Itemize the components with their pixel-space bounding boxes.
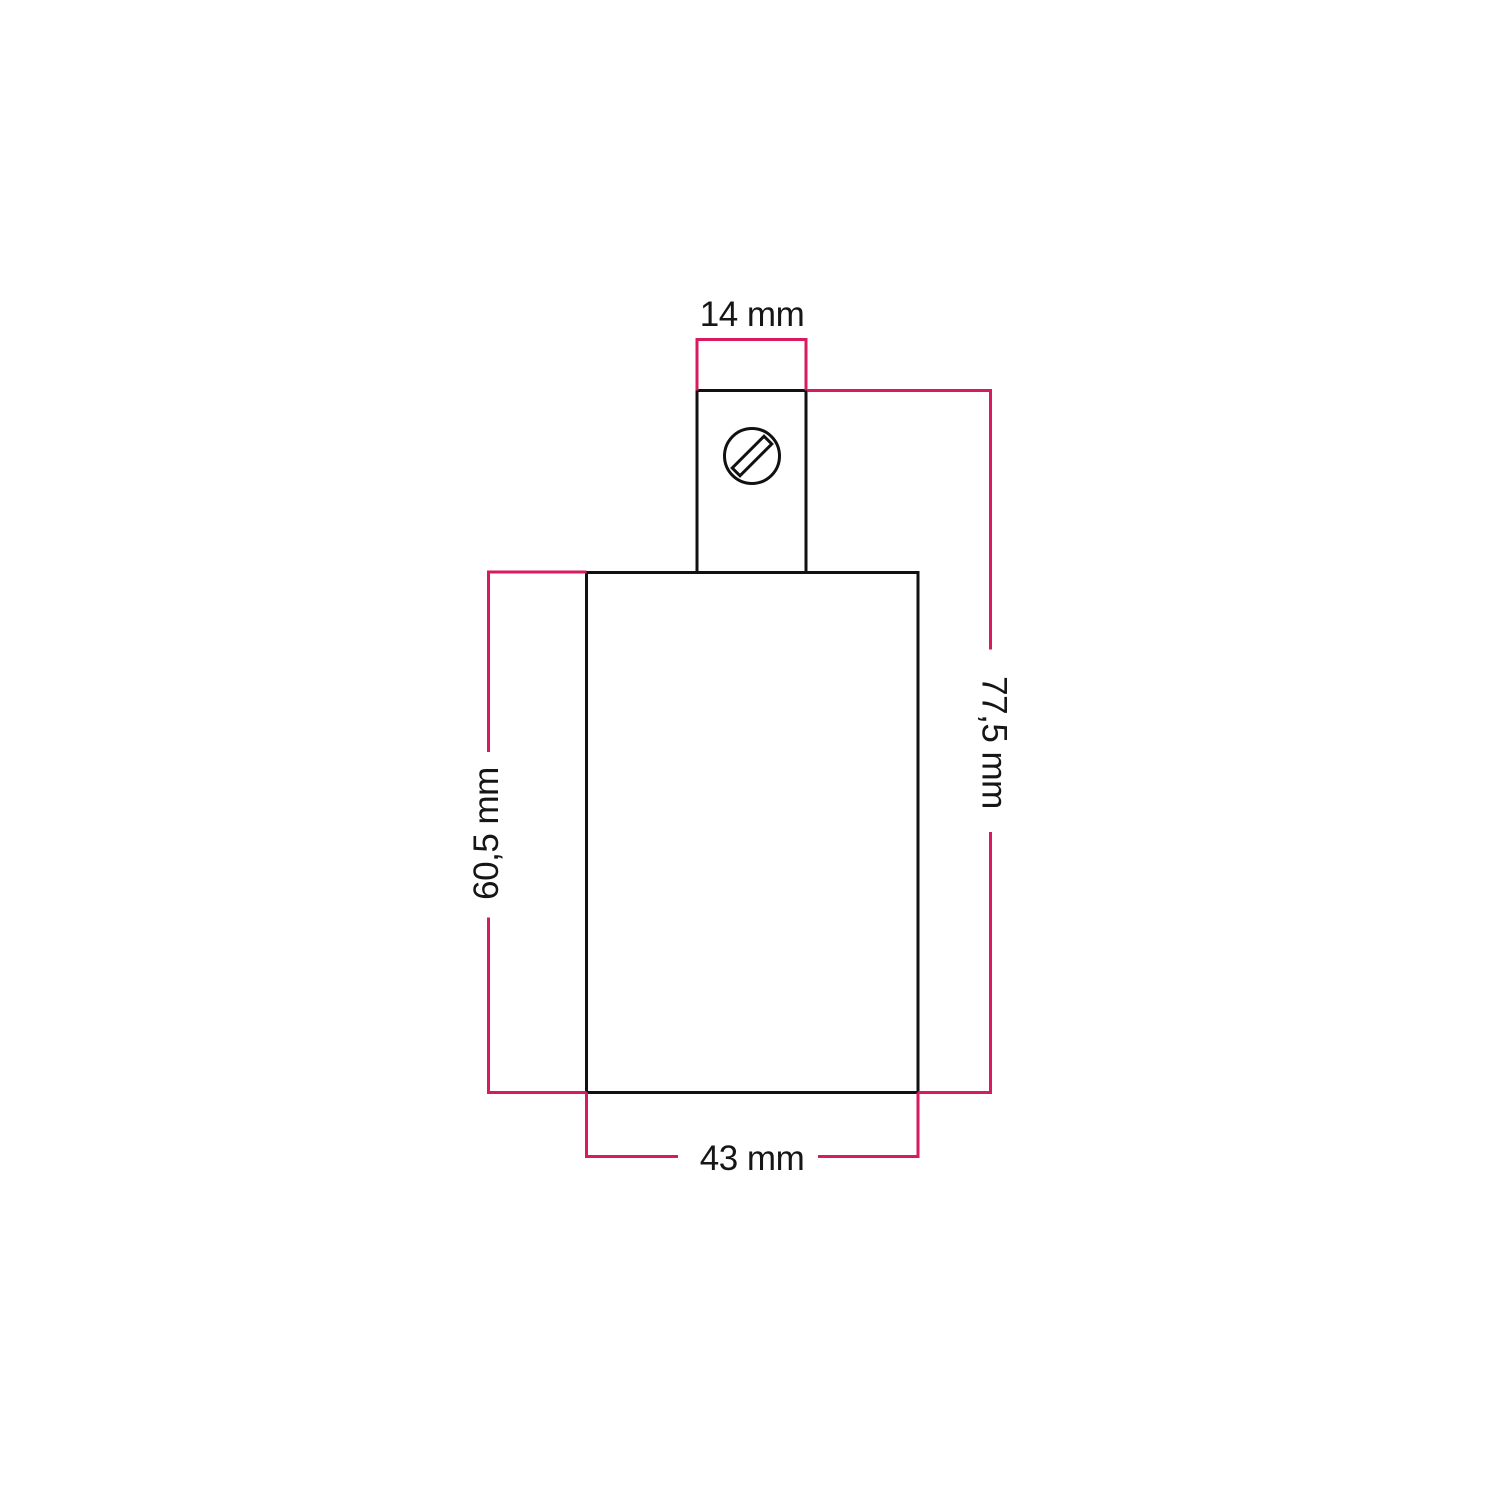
svg-text:14 mm: 14 mm — [700, 295, 804, 334]
svg-text:43 mm: 43 mm — [700, 1139, 804, 1178]
svg-text:60,5 mm: 60,5 mm — [467, 767, 506, 900]
svg-text:77,5 mm: 77,5 mm — [974, 676, 1013, 809]
